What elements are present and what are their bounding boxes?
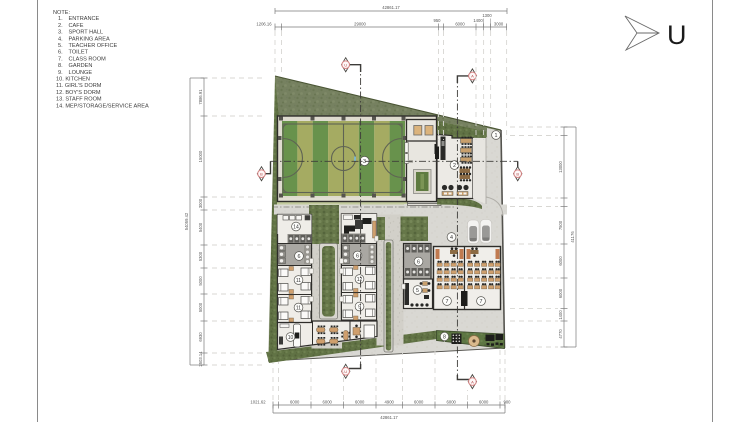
svg-text:5300: 5300 (198, 251, 203, 261)
svg-text:PARKING AREA: PARKING AREA (69, 36, 111, 42)
svg-text:6000: 6000 (323, 400, 333, 405)
svg-text:29000: 29000 (354, 22, 366, 27)
svg-text:CAFE: CAFE (69, 23, 84, 29)
svg-text:14: 14 (293, 225, 299, 231)
svg-text:CLASS ROOM: CLASS ROOM (69, 56, 107, 62)
svg-text:U: U (344, 369, 347, 374)
svg-text:13000: 13000 (558, 161, 563, 173)
svg-text:1400: 1400 (558, 310, 563, 320)
svg-text:13. STAFF ROOM: 13. STAFF ROOM (56, 97, 102, 103)
svg-text:2: 2 (453, 163, 456, 169)
svg-text:6000: 6000 (479, 400, 489, 405)
svg-text:10. KITCHEN: 10. KITCHEN (56, 77, 90, 83)
svg-text:3000: 3000 (198, 198, 203, 208)
svg-text:4: 4 (450, 235, 453, 241)
svg-text:15000: 15000 (198, 150, 203, 162)
svg-text:1.: 1. (58, 16, 63, 22)
svg-text:6930: 6930 (198, 332, 203, 342)
svg-text:NOTE:: NOTE: (53, 10, 71, 16)
svg-text:7.: 7. (58, 56, 63, 62)
svg-text:6000: 6000 (558, 256, 563, 266)
svg-text:7500: 7500 (558, 220, 563, 230)
svg-text:7: 7 (480, 299, 483, 305)
svg-text:B: B (516, 171, 519, 176)
svg-text:8: 8 (443, 335, 446, 341)
svg-text:54059.42: 54059.42 (184, 212, 189, 230)
svg-text:6.: 6. (58, 50, 63, 56)
svg-text:4770: 4770 (558, 329, 563, 339)
svg-text:950: 950 (434, 18, 442, 23)
svg-text:42861.17: 42861.17 (380, 415, 398, 420)
svg-text:6000: 6000 (414, 400, 424, 405)
svg-text:1021.62: 1021.62 (250, 400, 266, 405)
svg-text:4900: 4900 (385, 400, 395, 405)
svg-text:1206.16: 1206.16 (256, 22, 272, 27)
svg-text:1: 1 (495, 133, 498, 139)
svg-text:9.: 9. (58, 70, 63, 76)
svg-text:TOILET: TOILET (69, 50, 89, 56)
svg-text:U: U (344, 62, 347, 67)
svg-text:SPORT HALL: SPORT HALL (69, 30, 104, 36)
svg-text:11: 11 (296, 278, 301, 284)
svg-text:LOUNGE: LOUNGE (69, 70, 93, 76)
svg-text:14. MEP/STORAGE/SERVICE AREA: 14. MEP/STORAGE/SERVICE AREA (56, 103, 149, 109)
svg-text:2503.14: 2503.14 (198, 351, 203, 367)
svg-text:41176: 41176 (570, 231, 575, 243)
svg-text:1400: 1400 (473, 18, 483, 23)
svg-text:11: 11 (296, 306, 301, 312)
svg-text:5400: 5400 (198, 222, 203, 232)
svg-text:1300: 1300 (482, 13, 492, 18)
svg-text:3.: 3. (58, 30, 63, 36)
svg-text:6000: 6000 (447, 400, 457, 405)
svg-text:6: 6 (417, 260, 420, 266)
svg-text:12: 12 (357, 277, 363, 283)
svg-text:12. BOY'S DORM: 12. BOY'S DORM (56, 90, 101, 96)
svg-text:4.: 4. (58, 36, 63, 42)
svg-text:7886.91: 7886.91 (198, 89, 203, 105)
svg-text:5000: 5000 (198, 276, 203, 286)
svg-text:900: 900 (504, 400, 512, 405)
svg-text:6000: 6000 (355, 400, 365, 405)
svg-text:5: 5 (416, 288, 419, 294)
svg-text:6000: 6000 (558, 288, 563, 298)
svg-text:6: 6 (298, 254, 301, 260)
svg-text:6: 6 (356, 254, 359, 260)
svg-text:2.: 2. (58, 23, 63, 29)
svg-text:6000: 6000 (455, 22, 465, 27)
svg-text:5000: 5000 (198, 302, 203, 312)
svg-text:8.: 8. (58, 63, 63, 69)
svg-text:U: U (667, 20, 687, 50)
svg-text:TEACHER OFFICE: TEACHER OFFICE (69, 43, 118, 49)
svg-text:5.: 5. (58, 43, 63, 49)
svg-text:10: 10 (288, 335, 294, 341)
svg-text:ENTRANCE: ENTRANCE (69, 16, 100, 22)
svg-text:GARDEN: GARDEN (69, 63, 93, 69)
svg-text:11. GIRL'S DORM: 11. GIRL'S DORM (56, 83, 102, 89)
svg-text:7: 7 (446, 299, 449, 305)
svg-text:6000: 6000 (290, 400, 300, 405)
svg-text:3: 3 (363, 159, 366, 165)
svg-text:3000: 3000 (494, 22, 504, 27)
svg-text:42861.17: 42861.17 (382, 5, 400, 10)
svg-text:B: B (260, 171, 263, 176)
svg-text:A: A (471, 74, 474, 79)
svg-text:A: A (471, 379, 474, 384)
